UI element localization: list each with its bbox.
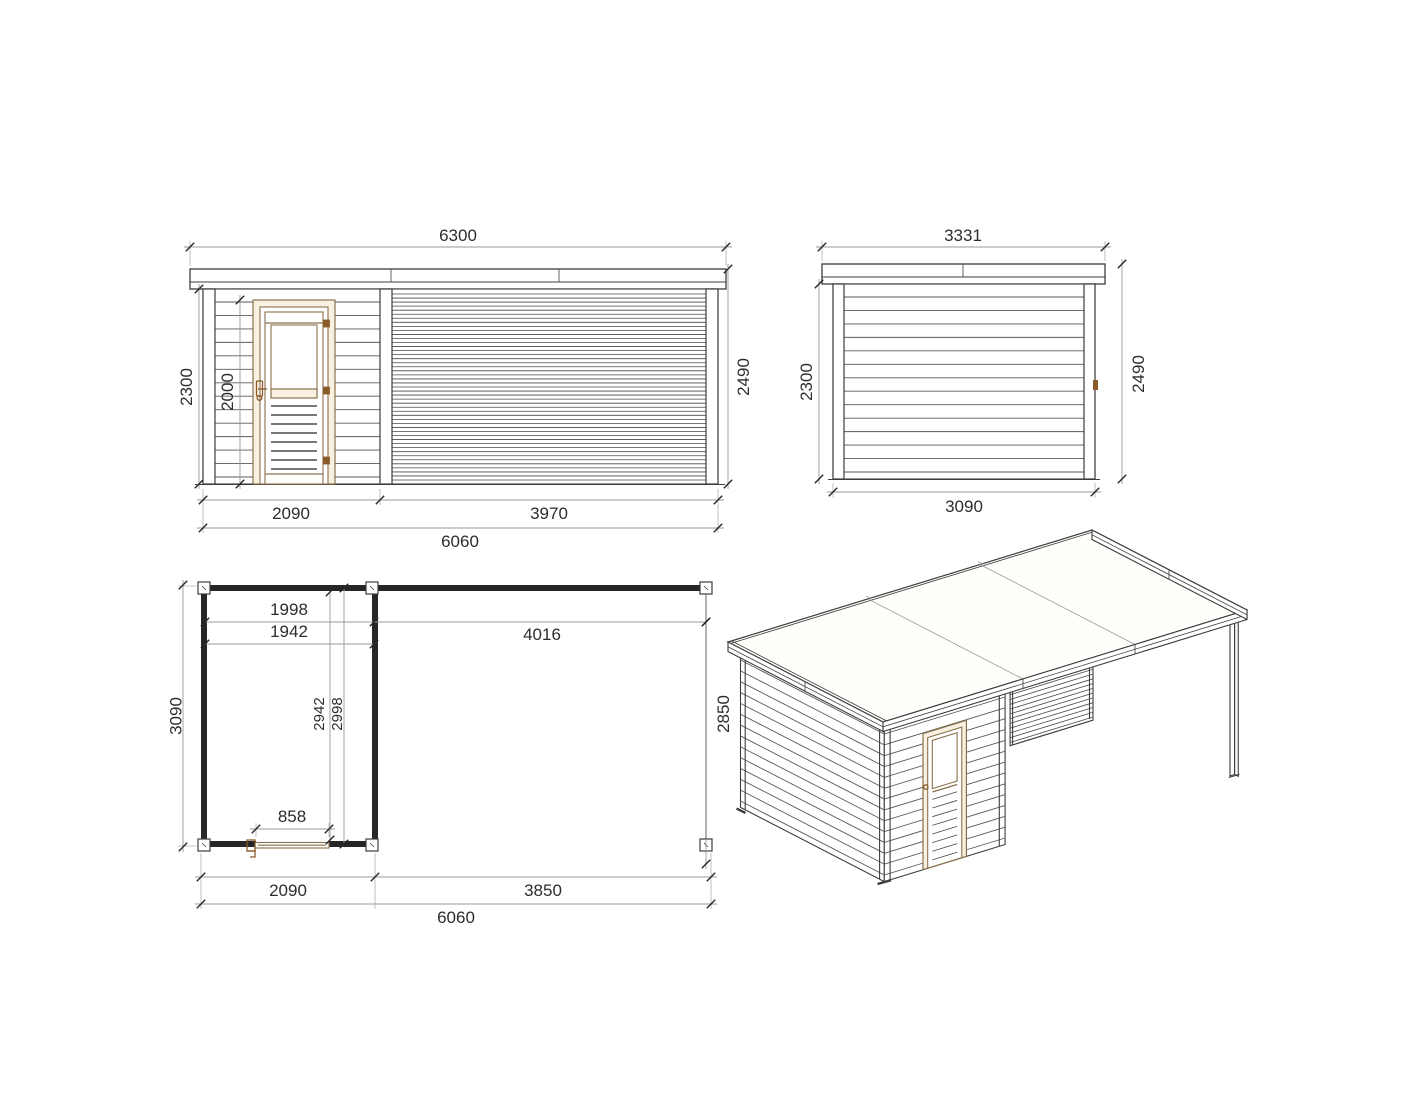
dim-label-front-seg-right: 3970 [530, 504, 568, 523]
dim-label-plan-seg-left: 2090 [269, 881, 307, 900]
svg-text:1998: 1998 [270, 600, 308, 619]
svg-text:3090: 3090 [168, 697, 186, 735]
plan-dim-door-width: 858 [250, 807, 335, 837]
technical-drawing-canvas: 6300 [0, 0, 1422, 1100]
svg-text:2490: 2490 [734, 358, 750, 396]
plan-dim-frame-width: 1942 [201, 622, 378, 648]
dim-label-plan-seg-right: 3850 [524, 881, 562, 900]
svg-text:2000: 2000 [218, 373, 237, 411]
iso-pergola-post [1229, 618, 1240, 777]
plan-dim-inner-depth-full: 2998 [329, 584, 348, 848]
side-roof-band [822, 264, 1105, 284]
front-dim-total-height: 2490 [724, 264, 750, 489]
dim-label-plan-pergola-width: 4016 [523, 625, 561, 644]
dim-label-front-total-width: 6060 [441, 532, 479, 551]
front-elevation-view: 6300 [170, 222, 750, 557]
svg-text:2300: 2300 [177, 368, 196, 406]
side-dim-width: 3090 [827, 483, 1101, 516]
svg-text:1942: 1942 [270, 622, 308, 641]
isometric-view [718, 520, 1298, 920]
svg-text:2942: 2942 [311, 697, 328, 730]
front-post-left [203, 289, 215, 484]
iso-door-window [932, 733, 957, 789]
svg-text:3090: 3090 [945, 497, 983, 516]
side-elevation-view: 3331 2300 2490 [790, 222, 1160, 522]
dim-label-plan-total-width: 6060 [437, 908, 475, 927]
plan-dim-depth: 3090 [168, 580, 196, 852]
plan-dim-bottom: 2090 3850 6060 [195, 853, 717, 927]
side-wall-body [828, 284, 1100, 480]
side-door-hardware-mark [1093, 380, 1098, 390]
iso-door [923, 720, 966, 869]
svg-text:2998: 2998 [329, 697, 346, 730]
dim-label-front-seg-left: 2090 [272, 504, 310, 523]
dim-label-front-roof-width: 6300 [439, 226, 477, 245]
side-post-left [833, 284, 844, 479]
side-dim-roof-width: 3331 [816, 226, 1111, 261]
front-roof-band [190, 269, 726, 289]
front-post-right [706, 289, 718, 484]
side-dim-total-height: 2490 [1118, 259, 1148, 484]
svg-text:858: 858 [278, 807, 306, 826]
front-dim-bottom: 2090 3970 6060 [197, 489, 724, 551]
svg-text:2490: 2490 [1129, 355, 1148, 393]
side-dim-wall-height: 2300 [797, 279, 823, 484]
front-post-middle [380, 289, 392, 484]
svg-text:3331: 3331 [944, 226, 982, 245]
front-door [253, 300, 335, 484]
plan-door [247, 840, 329, 857]
front-door-window [271, 325, 317, 389]
floor-plan-view: 1998 4016 1942 2942 2998 3090 [168, 552, 748, 952]
svg-text:2300: 2300 [797, 363, 816, 401]
front-dim-wall-height: 2300 [177, 284, 203, 489]
front-dim-roof-width: 6300 [184, 226, 732, 266]
